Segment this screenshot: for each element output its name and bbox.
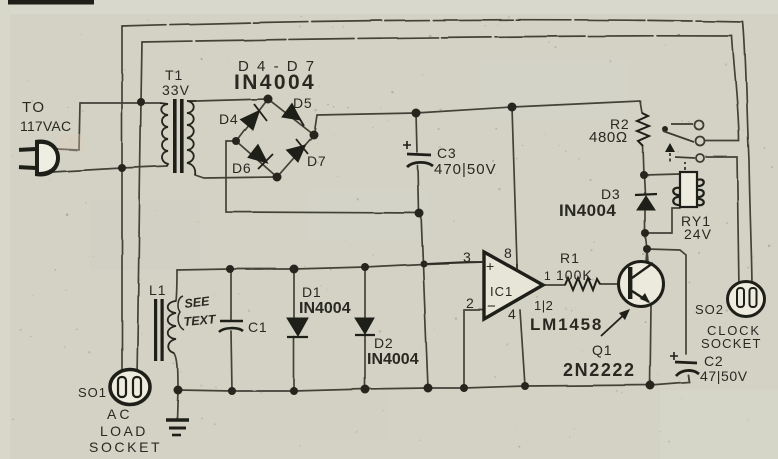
svg-text:D4: D4 <box>219 111 239 127</box>
svg-text:IC1: IC1 <box>490 284 513 299</box>
svg-text:D5: D5 <box>293 95 313 111</box>
svg-text:D1: D1 <box>302 284 322 300</box>
svg-text:Q1: Q1 <box>592 342 612 358</box>
svg-text:SO2: SO2 <box>695 302 724 317</box>
svg-text:8: 8 <box>504 245 513 261</box>
svg-text:T1: T1 <box>165 67 183 83</box>
svg-text:D3: D3 <box>601 186 621 202</box>
svg-text:2N2222: 2N2222 <box>563 360 636 380</box>
svg-text:480Ω: 480Ω <box>589 129 628 146</box>
svg-text:TEXT: TEXT <box>183 312 217 329</box>
svg-text:SOCKET: SOCKET <box>89 439 162 455</box>
svg-text:C3: C3 <box>437 145 457 161</box>
svg-text:D6: D6 <box>232 160 252 176</box>
svg-text:IN4004: IN4004 <box>559 201 616 220</box>
svg-text:1|2: 1|2 <box>534 298 553 313</box>
svg-text:TO: TO <box>22 99 46 116</box>
svg-text:24V: 24V <box>684 226 712 242</box>
svg-text:+: + <box>486 258 494 274</box>
svg-text:3: 3 <box>463 249 472 265</box>
svg-text:2: 2 <box>466 295 475 311</box>
svg-text:117VAC: 117VAC <box>20 118 71 134</box>
svg-text:100K: 100K <box>556 267 593 283</box>
svg-text:−: − <box>487 298 496 315</box>
svg-text:LM1458: LM1458 <box>530 315 603 334</box>
svg-text:L1: L1 <box>149 282 167 298</box>
svg-text:1: 1 <box>544 269 552 283</box>
svg-text:33V: 33V <box>162 82 190 98</box>
svg-text:R1: R1 <box>560 250 580 266</box>
svg-text:IN4004: IN4004 <box>234 71 316 94</box>
svg-text:C1: C1 <box>248 319 268 335</box>
svg-text:D2: D2 <box>374 335 394 351</box>
svg-text:LOAD: LOAD <box>100 423 148 439</box>
svg-text:47|50V: 47|50V <box>700 368 748 384</box>
svg-text:C2: C2 <box>704 353 724 369</box>
svg-text:SOCKET: SOCKET <box>701 336 762 351</box>
svg-text:470|50V: 470|50V <box>434 161 497 178</box>
svg-text:D7: D7 <box>307 153 327 169</box>
svg-text:IN4004: IN4004 <box>367 351 419 368</box>
svg-text:SO1: SO1 <box>78 385 107 400</box>
svg-text:4: 4 <box>508 306 517 322</box>
svg-text:AC: AC <box>107 406 132 422</box>
svg-text:IN4004: IN4004 <box>299 300 351 317</box>
